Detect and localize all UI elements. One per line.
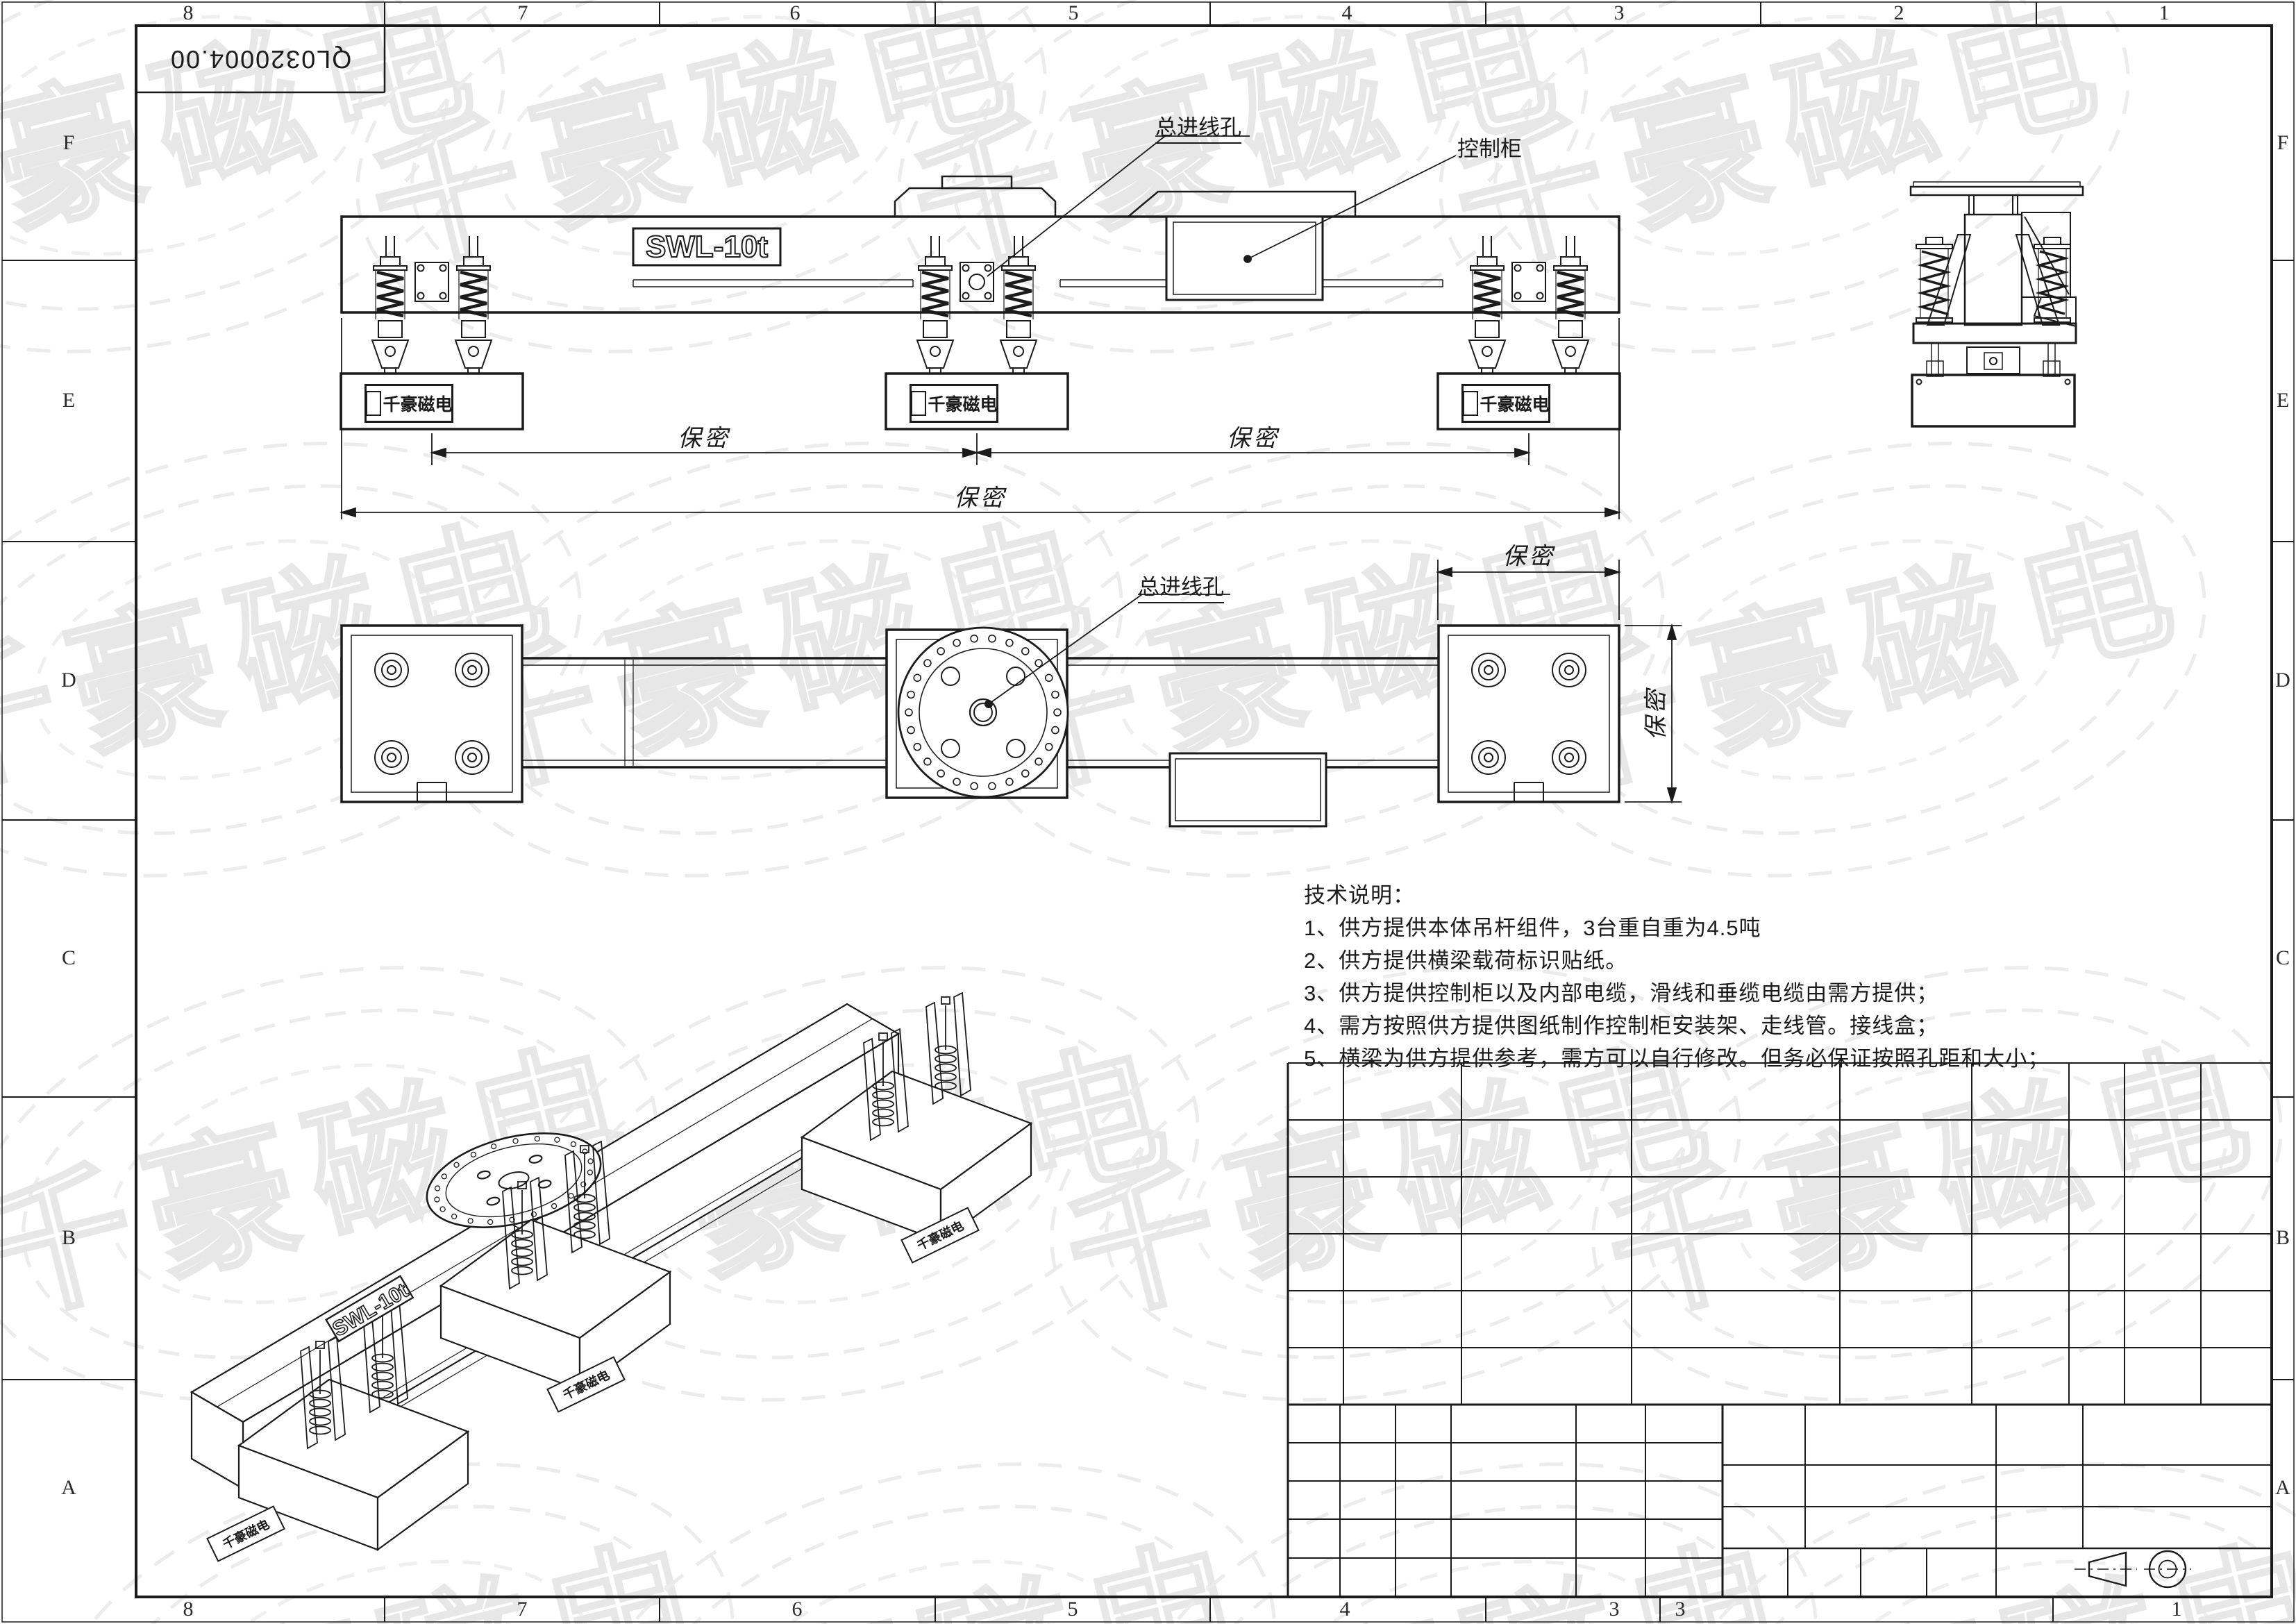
brand-logo-icon (1463, 391, 1478, 416)
plan-magnet-right (1439, 626, 1619, 802)
drawing-sheet: 千豪磁电千豪磁电千豪磁电千豪磁电千豪磁电千豪磁电千豪磁电千豪磁电千豪磁电千豪磁电… (0, 0, 2296, 1624)
zone-label-bottom: 6 (792, 1598, 803, 1621)
zone-label-left: D (61, 669, 76, 692)
magnet-nameplate: 千豪磁电 (910, 384, 998, 423)
zone-label-right: C (2276, 946, 2290, 970)
dim-front-overall: 保密 (954, 479, 1007, 513)
tech-note-item: 5、横梁为供方提供参考，需方可以自行修改。但务必保证按照孔距和大小； (1304, 1042, 2248, 1075)
cabinet-label: 控制柜 (1457, 131, 1522, 162)
tech-note-item: 1、供方提供本体吊杆组件，3台重自重为4.5吨 (1304, 912, 2248, 944)
zone-label-left: F (63, 131, 75, 155)
zone-label-right: F (2277, 131, 2289, 155)
zone-label-right: A (2275, 1476, 2290, 1500)
zone-label-top: 1 (2159, 1, 2170, 25)
zone-label-top: 6 (790, 1, 801, 25)
zone-label-bottom: 5 (1068, 1598, 1078, 1621)
side-view (1911, 182, 2083, 426)
tech-notes-title: 技术说明： (1304, 879, 2248, 912)
dim-front-left: 保密 (678, 419, 730, 453)
tech-notes: 技术说明： 1、供方提供本体吊杆组件，3台重自重为4.5吨2、供方提供横梁载荷标… (1304, 879, 2248, 1075)
zone-label-right: E (2277, 389, 2289, 412)
zone-label-left: E (62, 389, 75, 412)
brand-text: 千豪磁电 (383, 391, 453, 416)
zone-label-top: 3 (1614, 1, 1625, 25)
zone-label-bottom: 3 (1609, 1598, 1620, 1621)
zone-label-left: B (62, 1226, 76, 1250)
dim-plan-width: 保密 (1502, 537, 1555, 571)
zone-label-bottom: 8 (183, 1598, 194, 1621)
tech-note-item: 2、供方提供横梁载荷标识贴纸。 (1304, 944, 2248, 977)
brand-logo-icon (366, 391, 381, 416)
tech-note-item: 4、需方按照供方提供图纸制作控制柜安装架、走线管。接线盒； (1304, 1010, 2248, 1042)
zone-label-bottom: 3 (1675, 1598, 1686, 1621)
zone-label-right: D (2275, 669, 2290, 692)
zone-label-left: A (61, 1476, 76, 1500)
plan-cabinet (1170, 753, 1326, 826)
zone-label-bottom: 4 (1340, 1598, 1350, 1621)
swl-front-text: SWL-10t (646, 230, 768, 264)
brand-logo-icon (911, 391, 926, 416)
zone-label-top: 4 (1342, 1, 1352, 25)
plan-flange (887, 628, 1068, 798)
brand-text: 千豪磁电 (928, 391, 998, 416)
front-inlet-label: 总进线孔 (1155, 110, 1241, 144)
zone-label-right: B (2276, 1226, 2290, 1250)
brand-text: 千豪磁电 (1480, 391, 1550, 416)
plan-magnet-left (342, 626, 522, 802)
zone-label-top: 8 (183, 1, 194, 25)
drawing-number: QL0320004.00 (169, 44, 351, 74)
magnet-nameplate: 千豪磁电 (364, 384, 453, 423)
tech-note-item: 3、供方提供控制柜以及内部电缆，滑线和垂缆电缆由需方提供； (1304, 977, 2248, 1010)
zone-label-bottom: 7 (517, 1598, 528, 1621)
zone-label-top: 7 (518, 1, 528, 25)
zone-label-top: 5 (1069, 1, 1079, 25)
dim-plan-height: 保密 (1637, 687, 1671, 740)
zone-label-bottom: 1 (2172, 1598, 2182, 1621)
zone-label-left: C (62, 946, 76, 970)
dim-front-right: 保密 (1227, 419, 1280, 453)
plan-inlet-label: 总进线孔 (1138, 569, 1224, 603)
drawing-lineart: 千豪磁电千豪磁电千豪磁电千豪磁电千豪磁电千豪磁电千豪磁电千豪磁电千豪磁电千豪磁电… (0, 0, 2296, 1624)
drawing-number-box: QL0320004.00 (136, 26, 385, 92)
zone-label-top: 2 (1894, 1, 1904, 25)
magnet-nameplate: 千豪磁电 (1461, 384, 1550, 423)
